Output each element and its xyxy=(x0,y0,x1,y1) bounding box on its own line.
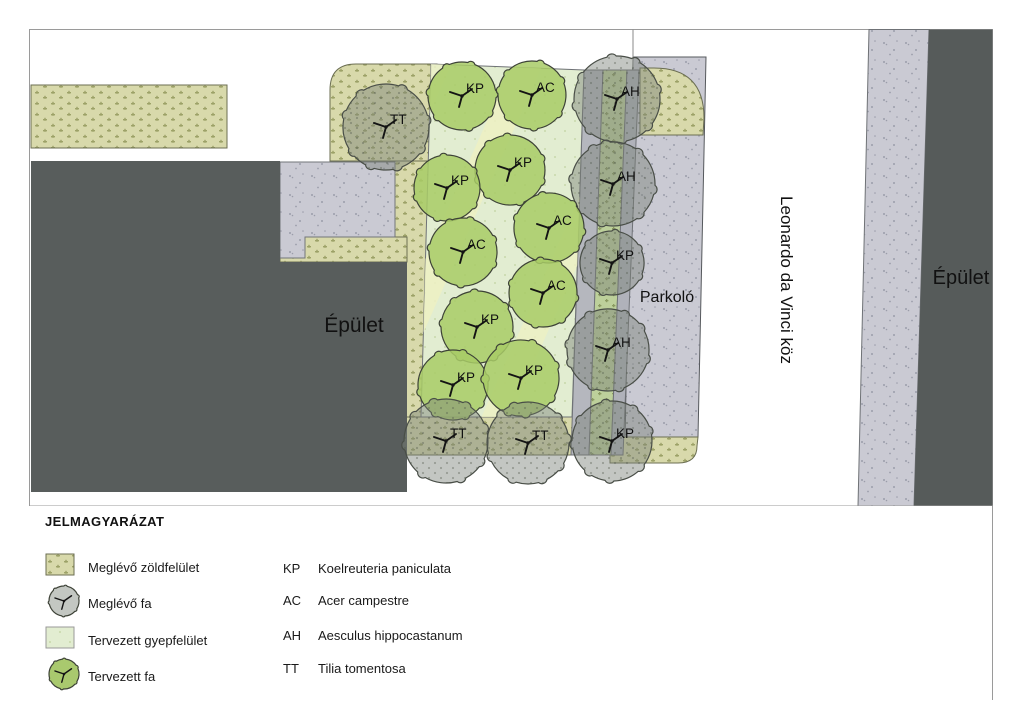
tree-code-label: KP xyxy=(616,248,634,263)
street-label: Leonardo da Vinci köz xyxy=(777,196,796,364)
tree-code-label: KP xyxy=(466,81,484,96)
tree-code-label: AH xyxy=(612,335,631,350)
tree-trunk-center xyxy=(445,186,448,189)
tree-code-label: KP xyxy=(616,426,634,441)
species-code: AH xyxy=(283,628,301,643)
tree-code-label: KP xyxy=(514,155,532,170)
tree-trunk-center xyxy=(547,226,550,229)
species-name: Acer campestre xyxy=(318,593,409,608)
legend-panel: JELMAGYARÁZAT Meglévő zöldfelületMeglévő… xyxy=(29,506,992,700)
species-row-kp: KPKoelreuteria paniculata xyxy=(29,550,549,586)
tree-trunk-center xyxy=(606,348,609,351)
tree-trunk-center xyxy=(475,325,478,328)
species-code: TT xyxy=(283,661,299,676)
tree-trunk-center xyxy=(526,441,529,444)
existing-green-area-topleft xyxy=(31,85,227,148)
tree-trunk-center xyxy=(460,94,463,97)
building-right-label: Épület xyxy=(933,266,990,289)
species-row-ac: ACAcer campestre xyxy=(29,582,549,618)
tree-code-label: KP xyxy=(481,312,499,327)
tree-trunk-center xyxy=(451,383,454,386)
tree-trunk-center xyxy=(611,182,614,185)
tree-code-label: TT xyxy=(532,428,549,443)
tree-trunk-center xyxy=(615,97,618,100)
tree-trunk-center xyxy=(508,168,511,171)
species-code: KP xyxy=(283,561,300,576)
tree-trunk-center xyxy=(530,93,533,96)
tree-trunk-center xyxy=(610,439,613,442)
species-name: Koelreuteria paniculata xyxy=(318,561,451,576)
species-name: Aesculus hippocastanum xyxy=(318,628,463,643)
parking-label: Parkoló xyxy=(640,289,694,306)
tree-code-label: KP xyxy=(451,173,469,188)
tree-code-label: TT xyxy=(390,112,407,127)
tree-code-label: AC xyxy=(547,278,566,293)
species-name: Tilia tomentosa xyxy=(318,661,406,676)
tree-code-label: AH xyxy=(617,169,636,184)
tree-code-label: AH xyxy=(621,84,640,99)
tree-code-label: TT xyxy=(450,426,467,441)
tree-trunk-center xyxy=(610,261,613,264)
tree-code-label: KP xyxy=(525,363,543,378)
tree-trunk-center xyxy=(384,125,387,128)
tree-trunk-center xyxy=(541,291,544,294)
site-plan-page: KPACAHTTKPAHKPACACKPACKPAHKPKPTTTTKP Épü… xyxy=(0,0,1024,724)
legend-title: JELMAGYARÁZAT xyxy=(45,514,164,529)
species-code: AC xyxy=(283,593,301,608)
tree-trunk-center xyxy=(444,439,447,442)
building-left-label: Épület xyxy=(324,314,384,337)
species-row-tt: TTTilia tomentosa xyxy=(29,650,549,686)
tree-code-label: AC xyxy=(553,213,572,228)
tree-code-label: KP xyxy=(457,370,475,385)
tree-code-label: AC xyxy=(536,80,555,95)
species-row-ah: AHAesculus hippocastanum xyxy=(29,617,549,653)
tree-trunk-center xyxy=(461,250,464,253)
tree-code-label: AC xyxy=(467,237,486,252)
tree-trunk-center xyxy=(519,376,522,379)
